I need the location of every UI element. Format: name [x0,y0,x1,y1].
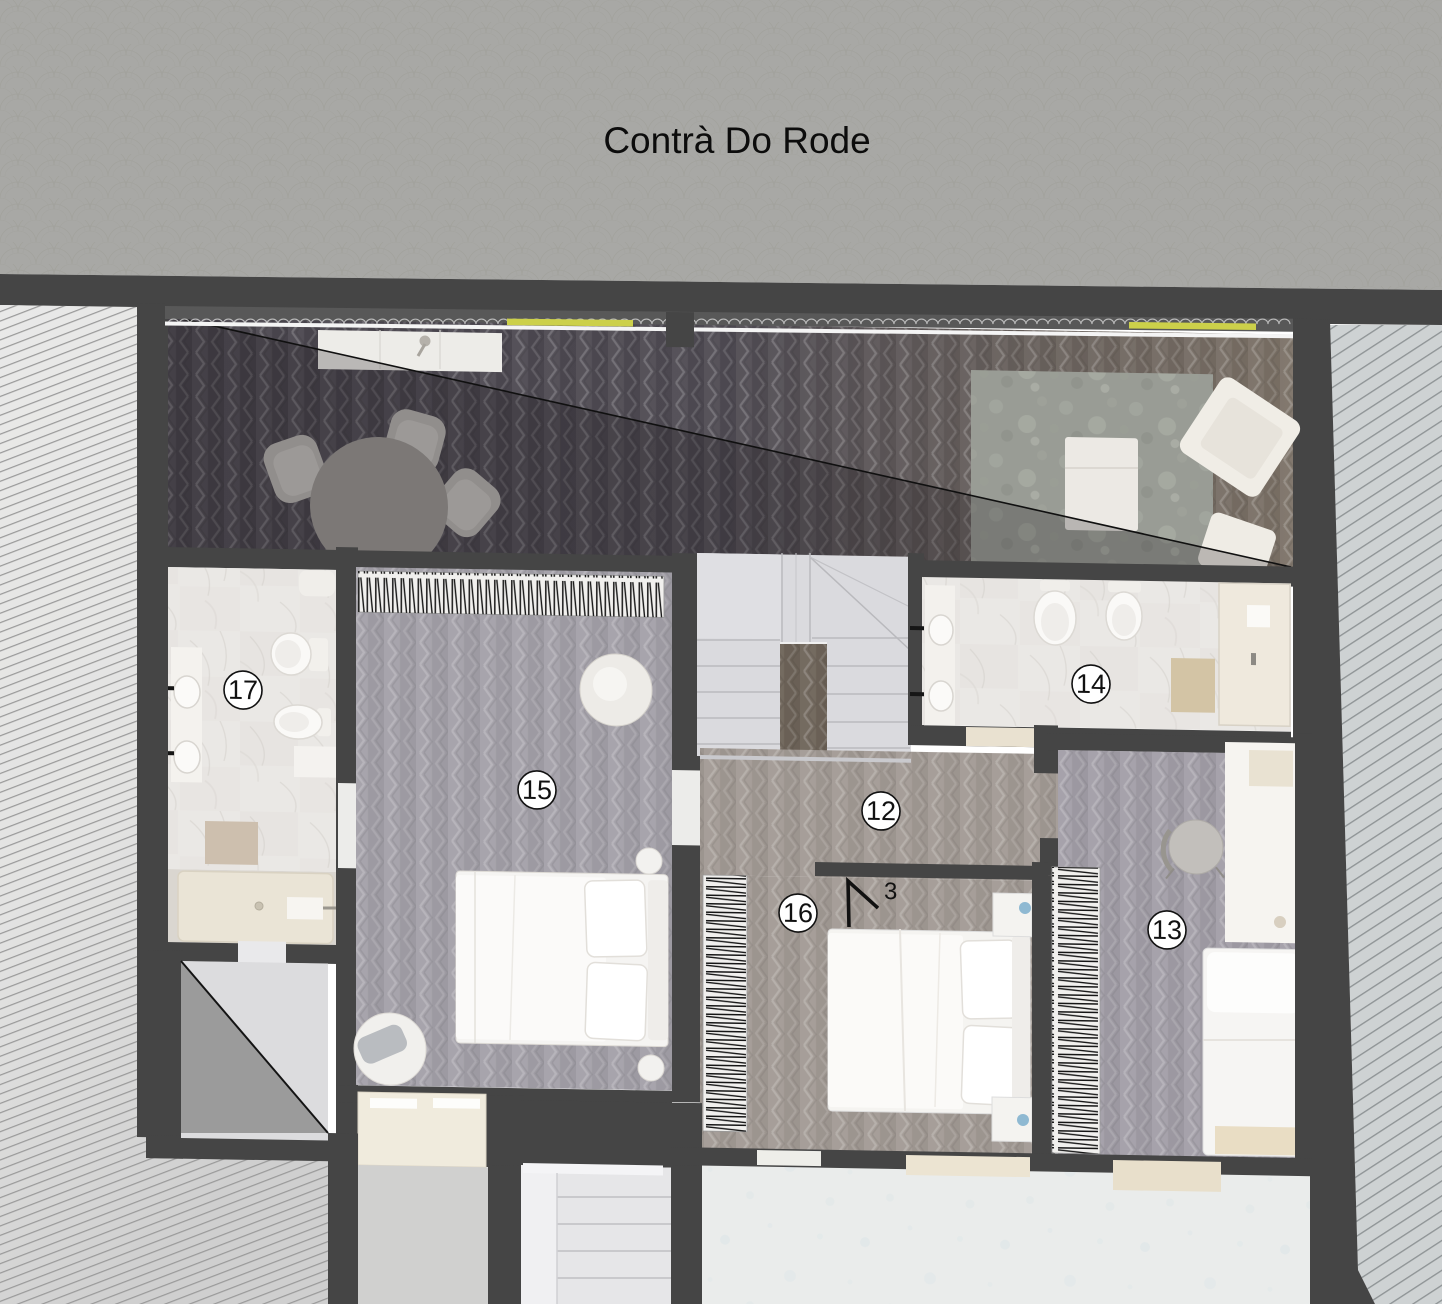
svg-text:14: 14 [1076,669,1106,700]
svg-text:13: 13 [1152,915,1182,946]
svg-text:16: 16 [783,898,813,929]
svg-text:17: 17 [228,675,258,706]
svg-text:12: 12 [866,796,896,827]
svg-text:15: 15 [522,775,552,806]
svg-text:3: 3 [884,878,897,905]
svg-text:Contrà Do Rode: Contrà Do Rode [603,120,870,161]
